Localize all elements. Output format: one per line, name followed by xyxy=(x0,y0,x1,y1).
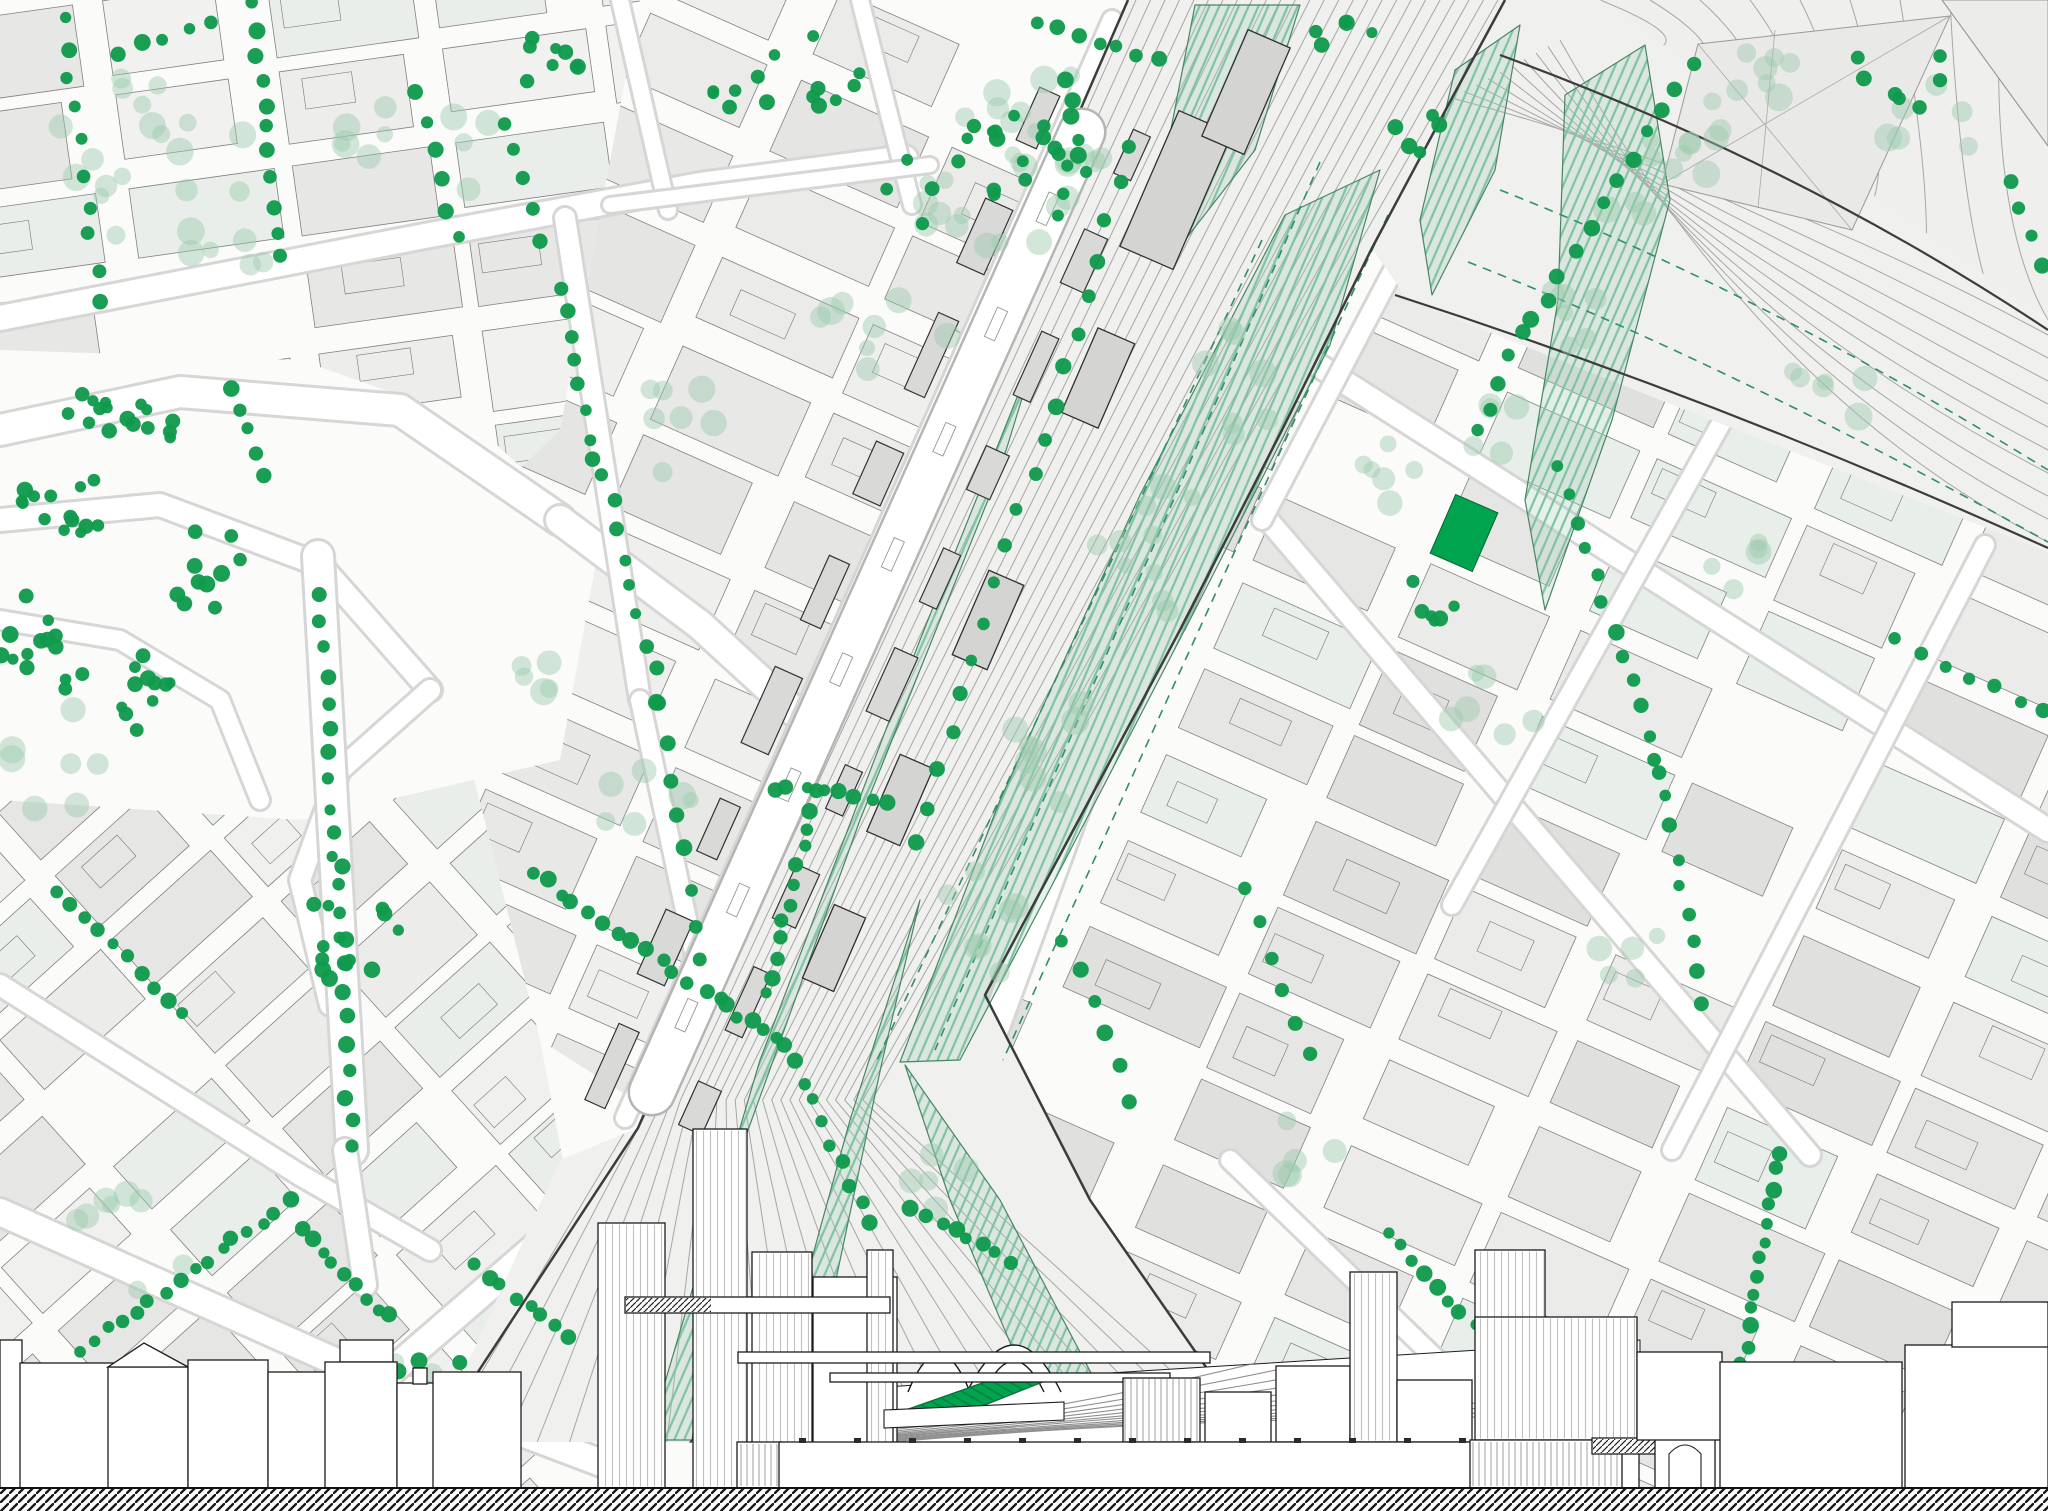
section-building xyxy=(1276,1366,1350,1442)
section-beam xyxy=(625,1297,890,1313)
section-building xyxy=(1720,1362,1902,1488)
section-building xyxy=(188,1360,268,1488)
section-beam xyxy=(830,1373,1170,1382)
section-ground-hatch xyxy=(0,1488,2048,1511)
section-building xyxy=(1123,1378,1200,1442)
section-building xyxy=(433,1372,521,1488)
section-building xyxy=(1397,1380,1472,1442)
section-tower-hatched xyxy=(1350,1272,1397,1442)
section-tower-hatched xyxy=(598,1223,665,1488)
site-plan-drawing xyxy=(0,0,2048,1511)
section-tower-hatched xyxy=(1475,1317,1637,1440)
section-building xyxy=(737,1442,782,1488)
section-building xyxy=(413,1368,427,1384)
section-building xyxy=(1637,1352,1722,1440)
section-building xyxy=(1205,1392,1271,1442)
masterplan-screenshot xyxy=(0,0,2048,1511)
section-building xyxy=(0,1340,22,1488)
section-building xyxy=(325,1362,397,1488)
section-building xyxy=(1905,1345,2048,1488)
section-building xyxy=(1952,1302,2048,1347)
section-building xyxy=(340,1340,393,1362)
section-tower-hatched xyxy=(1475,1250,1545,1320)
section-gable-house xyxy=(108,1343,188,1488)
section-beam xyxy=(738,1352,1210,1363)
